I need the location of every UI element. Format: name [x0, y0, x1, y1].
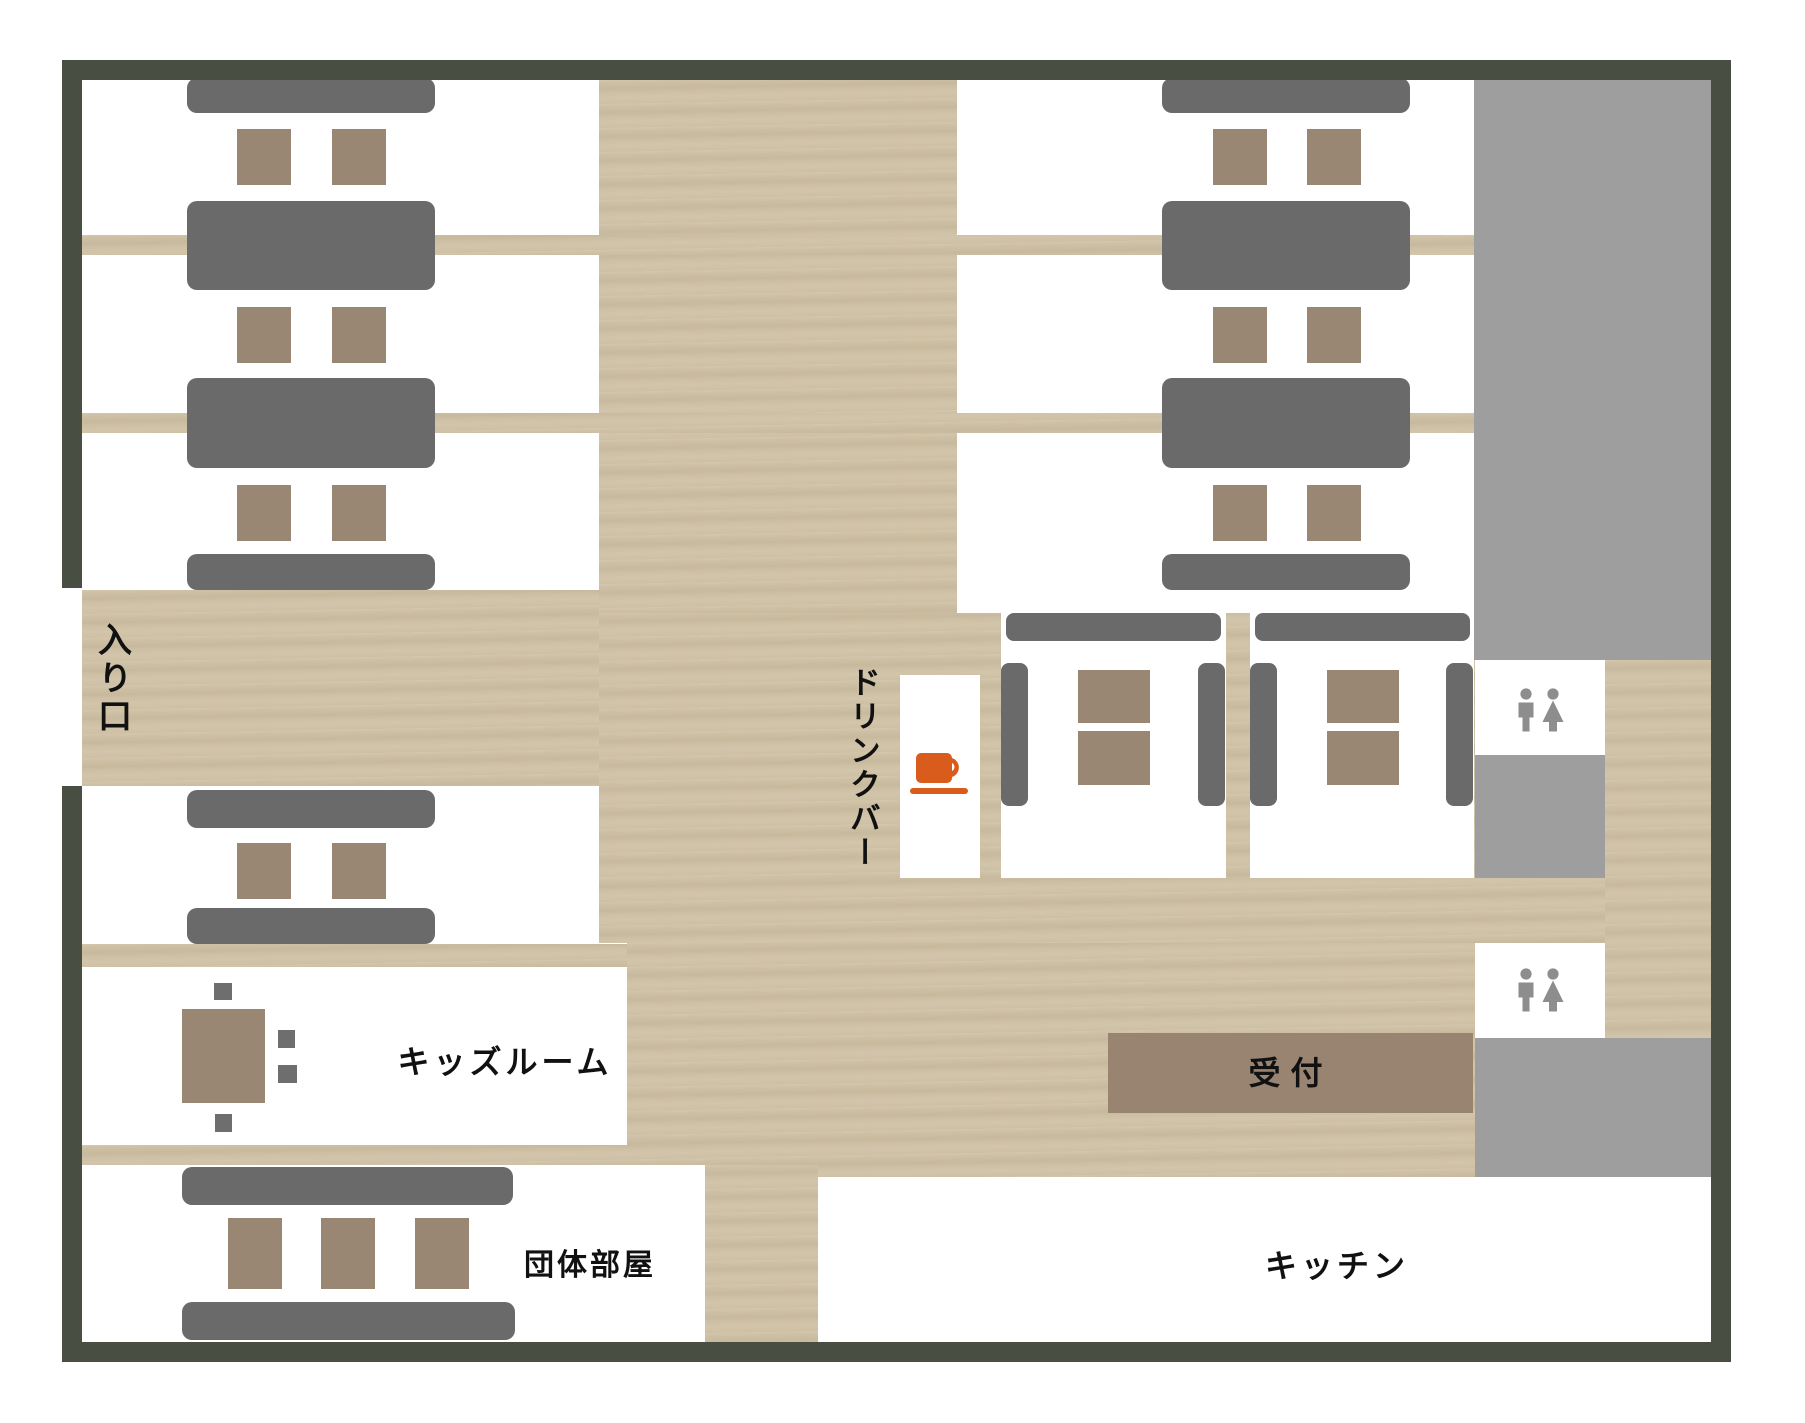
booth-b-left-bench — [1250, 663, 1277, 806]
bench-left-6 — [187, 908, 435, 944]
entrance-label: 入り口 — [88, 622, 134, 752]
booth-a-table — [1078, 670, 1150, 723]
stool — [1213, 129, 1267, 185]
stool — [332, 843, 386, 899]
stool — [332, 485, 386, 541]
entrance-floor — [82, 590, 599, 786]
stool — [332, 129, 386, 185]
group-room-label: 団体部屋 — [518, 1248, 662, 1284]
kids-room-label: キッズルーム — [383, 1042, 627, 1082]
stool — [1213, 307, 1267, 363]
booth-b-table — [1327, 731, 1399, 785]
stool — [237, 129, 291, 185]
bench-left-3 — [187, 378, 435, 468]
wall-bottom — [62, 1342, 1731, 1362]
booth-a-left-bench — [1001, 663, 1028, 806]
booth-a-back-bench — [1006, 613, 1221, 641]
stool — [237, 307, 291, 363]
wall-top — [62, 60, 1731, 80]
kids-chair — [278, 1065, 297, 1083]
bench-left-1 — [187, 78, 435, 113]
gray-zone-column — [1474, 80, 1711, 660]
divider-strip-4 — [82, 1145, 705, 1165]
gray-zone-box-upper — [1475, 755, 1605, 878]
divider-strip-3 — [82, 944, 627, 967]
wall-right — [1711, 60, 1731, 1362]
stool — [237, 843, 291, 899]
reception-desk: 受付 — [1108, 1033, 1473, 1113]
restroom-lower-icon-group — [1513, 968, 1567, 1014]
wall-left-lower — [62, 786, 82, 1362]
booth-b-back-bench — [1255, 613, 1470, 641]
right-band-floor — [1605, 660, 1711, 1038]
group-room-stool — [415, 1218, 469, 1289]
booth-b-table — [1327, 670, 1399, 723]
booth-b-right-bench — [1446, 663, 1473, 806]
corridor-top-floor — [599, 80, 957, 613]
stool — [237, 485, 291, 541]
mid-band-floor — [599, 878, 1711, 943]
bench-right-4 — [1162, 554, 1410, 590]
bench-right-2 — [1162, 201, 1410, 290]
kitchen-label: キッチン — [1242, 1246, 1432, 1286]
stool — [332, 307, 386, 363]
booth-a-right-bench — [1198, 663, 1225, 806]
kids-table — [182, 1009, 265, 1103]
bench-left-5 — [187, 790, 435, 828]
stool — [1307, 307, 1361, 363]
wall-left-upper — [62, 60, 82, 588]
stool — [1307, 129, 1361, 185]
coffee-cup-icon — [908, 750, 972, 798]
restroom-upper-icon-group — [1513, 688, 1567, 734]
bench-right-3 — [1162, 378, 1410, 468]
bench-left-4 — [187, 554, 435, 590]
group-room-stool — [228, 1218, 282, 1289]
stool — [1213, 485, 1267, 541]
male-female-restroom-icon — [1513, 968, 1567, 1014]
booth-a-table — [1078, 731, 1150, 785]
bench-right-1 — [1162, 78, 1410, 113]
drink-bar-label: ドリンクバー — [840, 666, 884, 888]
gray-zone-box-lower — [1475, 1038, 1711, 1177]
group-room-bench-bottom — [182, 1302, 515, 1340]
kids-chair — [278, 1030, 295, 1048]
kids-chair — [214, 983, 232, 1000]
reception-label: 受付 — [1248, 1055, 1332, 1092]
floor-plan: 受付 — [0, 0, 1805, 1423]
group-room-stool — [321, 1218, 375, 1289]
stool — [1307, 485, 1361, 541]
group-room-bench-top — [182, 1167, 513, 1205]
bench-left-2 — [187, 201, 435, 290]
kids-chair — [215, 1114, 232, 1132]
male-female-restroom-icon — [1513, 688, 1567, 734]
corridor-bottom-floor — [705, 1165, 818, 1342]
